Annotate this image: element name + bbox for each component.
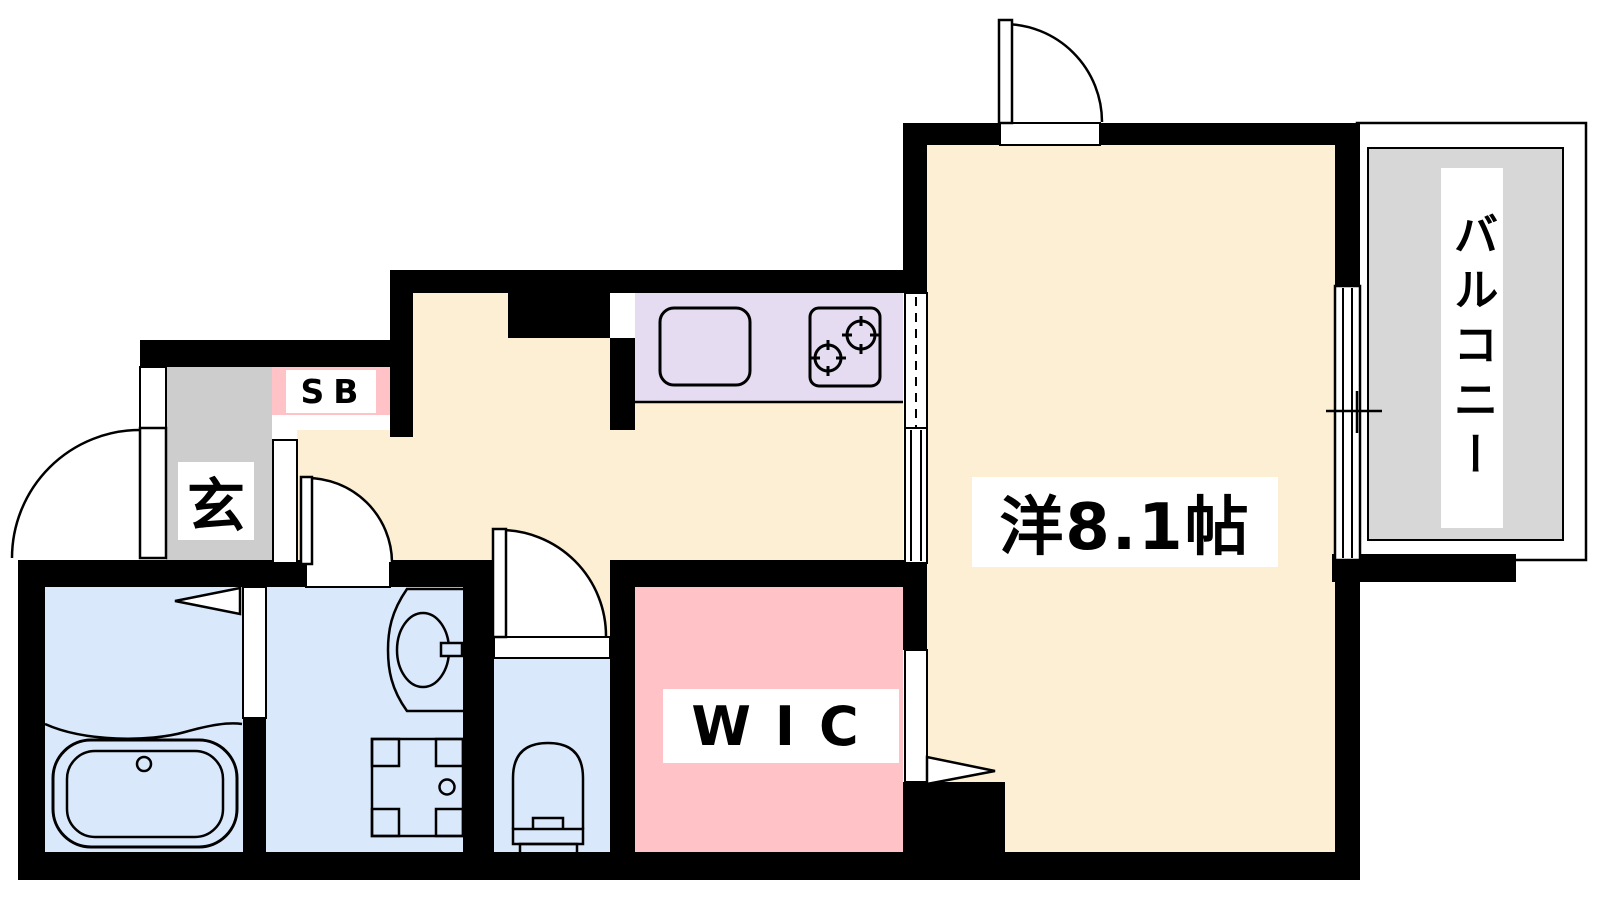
bathroom-door-panel <box>243 587 266 718</box>
main-room-label: 洋8.1帖 <box>972 477 1278 567</box>
washroom-floor <box>266 587 463 852</box>
kitchen-counter <box>635 293 903 403</box>
wic-label: WIC <box>663 689 899 763</box>
toilet-floor <box>494 658 610 852</box>
main-room-door-icon <box>999 20 1102 123</box>
balcony-label: バルコニー <box>1441 168 1503 528</box>
bathroom-floor <box>45 587 243 852</box>
entrance-label: 玄 <box>178 462 254 540</box>
floor-plan: 玄 SB WIC 洋8.1帖 バルコニー <box>0 0 1600 900</box>
floor-plan-drawing <box>0 0 1600 900</box>
kitchen-sliding-door-icon <box>905 293 927 563</box>
entrance-step-edge <box>273 440 297 563</box>
wic-door-panel <box>905 650 927 782</box>
entrance-door-icon <box>12 428 166 558</box>
main-door-threshold <box>1000 123 1100 145</box>
shoe-box-label: SB <box>286 370 376 413</box>
entrance-opening <box>140 367 166 428</box>
washroom-door-threshold <box>306 560 390 587</box>
toilet-door-threshold <box>494 637 610 658</box>
